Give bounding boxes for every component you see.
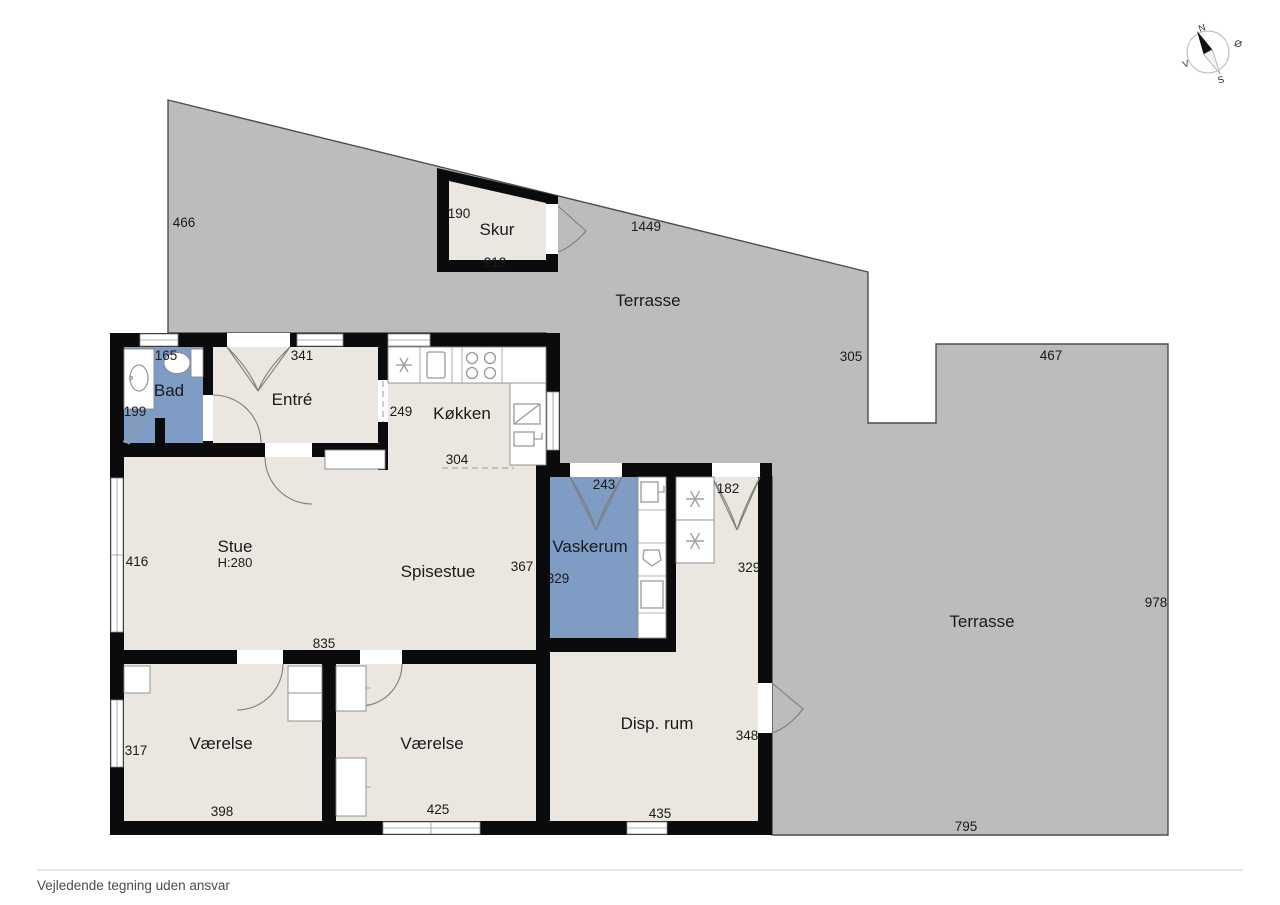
dim-terrace-right-bottom: 795 — [955, 819, 978, 834]
floor-vaskerum — [546, 477, 638, 638]
compass-south-label: S — [1217, 74, 1226, 86]
dim-stue-bottom: 835 — [313, 636, 336, 651]
closet — [288, 693, 322, 721]
window — [388, 334, 430, 346]
room-label-bad: Bad — [154, 381, 184, 400]
room-label-vaskerum: Vaskerum — [552, 537, 627, 556]
dim-terrace-left: 466 — [173, 215, 196, 230]
dim-terrace-right-side: 978 — [1145, 595, 1168, 610]
compass-needle-south — [1204, 50, 1220, 74]
dim-kokken-bottom: 304 — [446, 452, 469, 467]
vaerelse-left-door-gap — [237, 650, 283, 664]
window — [111, 700, 123, 767]
closet — [336, 666, 366, 711]
dim-skur-bottom: 212 — [484, 255, 507, 270]
window — [111, 478, 123, 632]
wall-segment — [666, 477, 676, 652]
dim-stue-side: 416 — [126, 554, 149, 569]
compass-rose: N Ø S V — [1181, 22, 1244, 86]
compass-west-label: V — [1181, 58, 1191, 71]
dim-terrace-slant: 1449 — [631, 219, 661, 234]
dim-kokken-side: 249 — [390, 404, 413, 419]
room-label-vaerelse-right: Værelse — [400, 734, 463, 753]
footer-disclaimer: Vejledende tegning uden ansvar — [37, 878, 230, 893]
stue-door-gap — [265, 443, 312, 457]
skur-door-gap — [546, 204, 558, 254]
dim-vaerelse-right-bottom: 425 — [427, 802, 450, 817]
dim-vaskerum-side: 329 — [547, 571, 570, 586]
window — [140, 334, 178, 346]
dim-disp-bottom: 435 — [649, 806, 672, 821]
wall-segment — [322, 664, 336, 821]
toilet-tank — [191, 349, 203, 377]
disp-right-door-gap — [758, 683, 772, 733]
room-label-vaerelse-left: Værelse — [189, 734, 252, 753]
vaerelse-right-door-gap — [360, 650, 402, 664]
floor-stue-spisestue — [117, 455, 546, 659]
laundry-counter — [638, 477, 666, 638]
room-label-stue: Stue — [218, 537, 253, 556]
room-label-terrasse-right: Terrasse — [949, 612, 1014, 631]
dim-disp-top-door: 182 — [717, 481, 740, 496]
closet — [336, 758, 366, 816]
window — [627, 822, 667, 834]
dim-spisestue-side: 367 — [511, 559, 534, 574]
dim-vaerelse-left-side: 317 — [125, 743, 148, 758]
dim-terrace-notch: 305 — [840, 349, 863, 364]
dim-vaskerum-top: 243 — [593, 477, 616, 492]
wall-segment — [110, 650, 546, 664]
room-label-disp-rum: Disp. rum — [621, 714, 694, 733]
dim-terrace-right-top: 467 — [1040, 348, 1063, 363]
closet — [325, 450, 385, 469]
room-label-kokken: Køkken — [433, 404, 491, 423]
bad-door-gap — [203, 395, 213, 441]
room-height-note: H:280 — [218, 555, 253, 570]
dim-entre-top: 341 — [291, 348, 314, 363]
floor-plan-page: Skur Terrasse Terrasse Bad Entré Køkken … — [0, 0, 1280, 905]
dim-disp-upper-side: 329 — [738, 560, 761, 575]
dim-bad-side: 199 — [124, 404, 147, 419]
room-label-skur: Skur — [480, 220, 515, 239]
wall-segment — [536, 638, 676, 652]
wall-segment — [155, 418, 165, 443]
entrance-door-gap — [227, 333, 290, 347]
room-label-terrasse-top: Terrasse — [615, 291, 680, 310]
room-label-entre: Entré — [272, 390, 313, 409]
room-label-spisestue: Spisestue — [401, 562, 476, 581]
window — [383, 822, 480, 834]
dim-bad-top: 165 — [155, 348, 178, 363]
closet — [124, 666, 150, 693]
window — [547, 392, 559, 450]
closet — [288, 666, 322, 693]
wall-segment — [758, 463, 772, 835]
dim-skur-side: 190 — [448, 206, 471, 221]
vaskerum-door-gap — [570, 463, 622, 477]
disp-top-door-gap — [712, 463, 760, 477]
floor-plan-svg: Skur Terrasse Terrasse Bad Entré Køkken … — [0, 0, 1280, 905]
dim-disp-side: 348 — [736, 728, 759, 743]
window — [297, 334, 343, 346]
bathroom-counter — [124, 349, 154, 409]
compass-east-label: Ø — [1232, 38, 1244, 51]
dim-vaerelse-left-bottom: 398 — [211, 804, 234, 819]
